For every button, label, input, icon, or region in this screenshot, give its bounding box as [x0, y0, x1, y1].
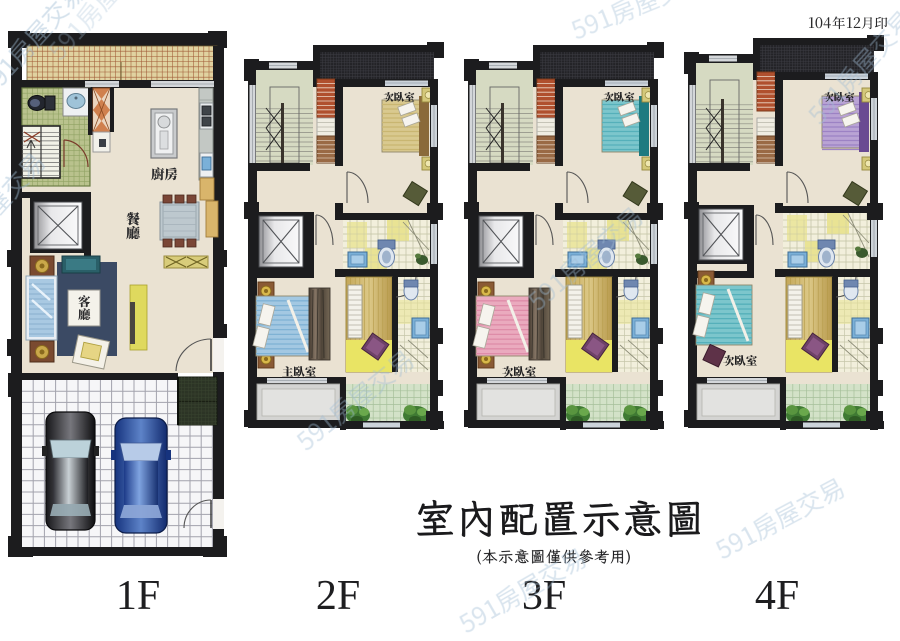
svg-text:1F: 1F	[116, 573, 160, 619]
svg-text:2F: 2F	[316, 573, 360, 619]
svg-text:4F: 4F	[755, 573, 799, 619]
